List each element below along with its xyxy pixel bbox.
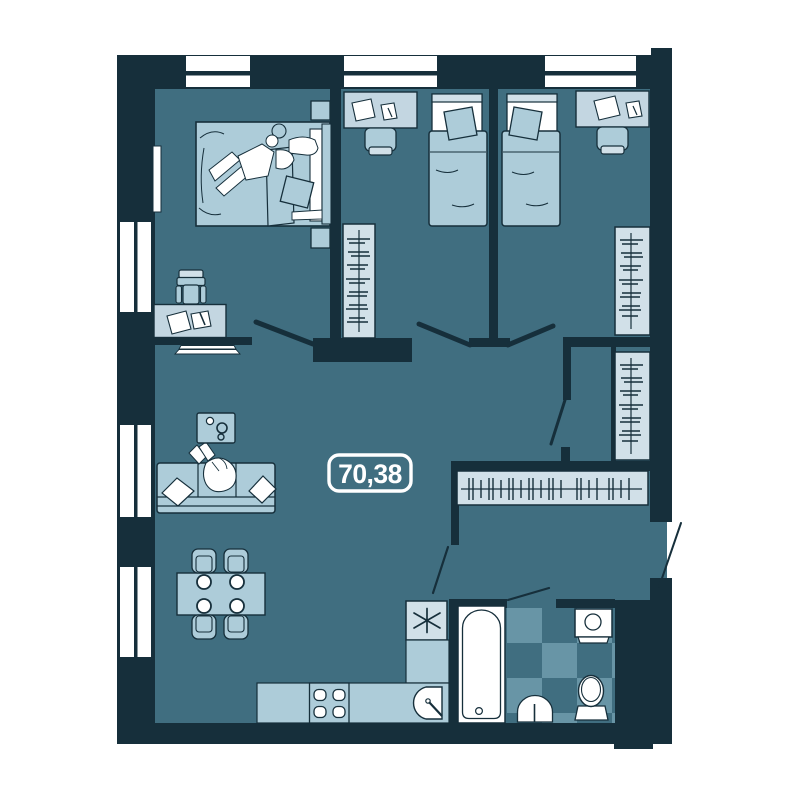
svg-text:70,38: 70,38 — [338, 459, 402, 489]
